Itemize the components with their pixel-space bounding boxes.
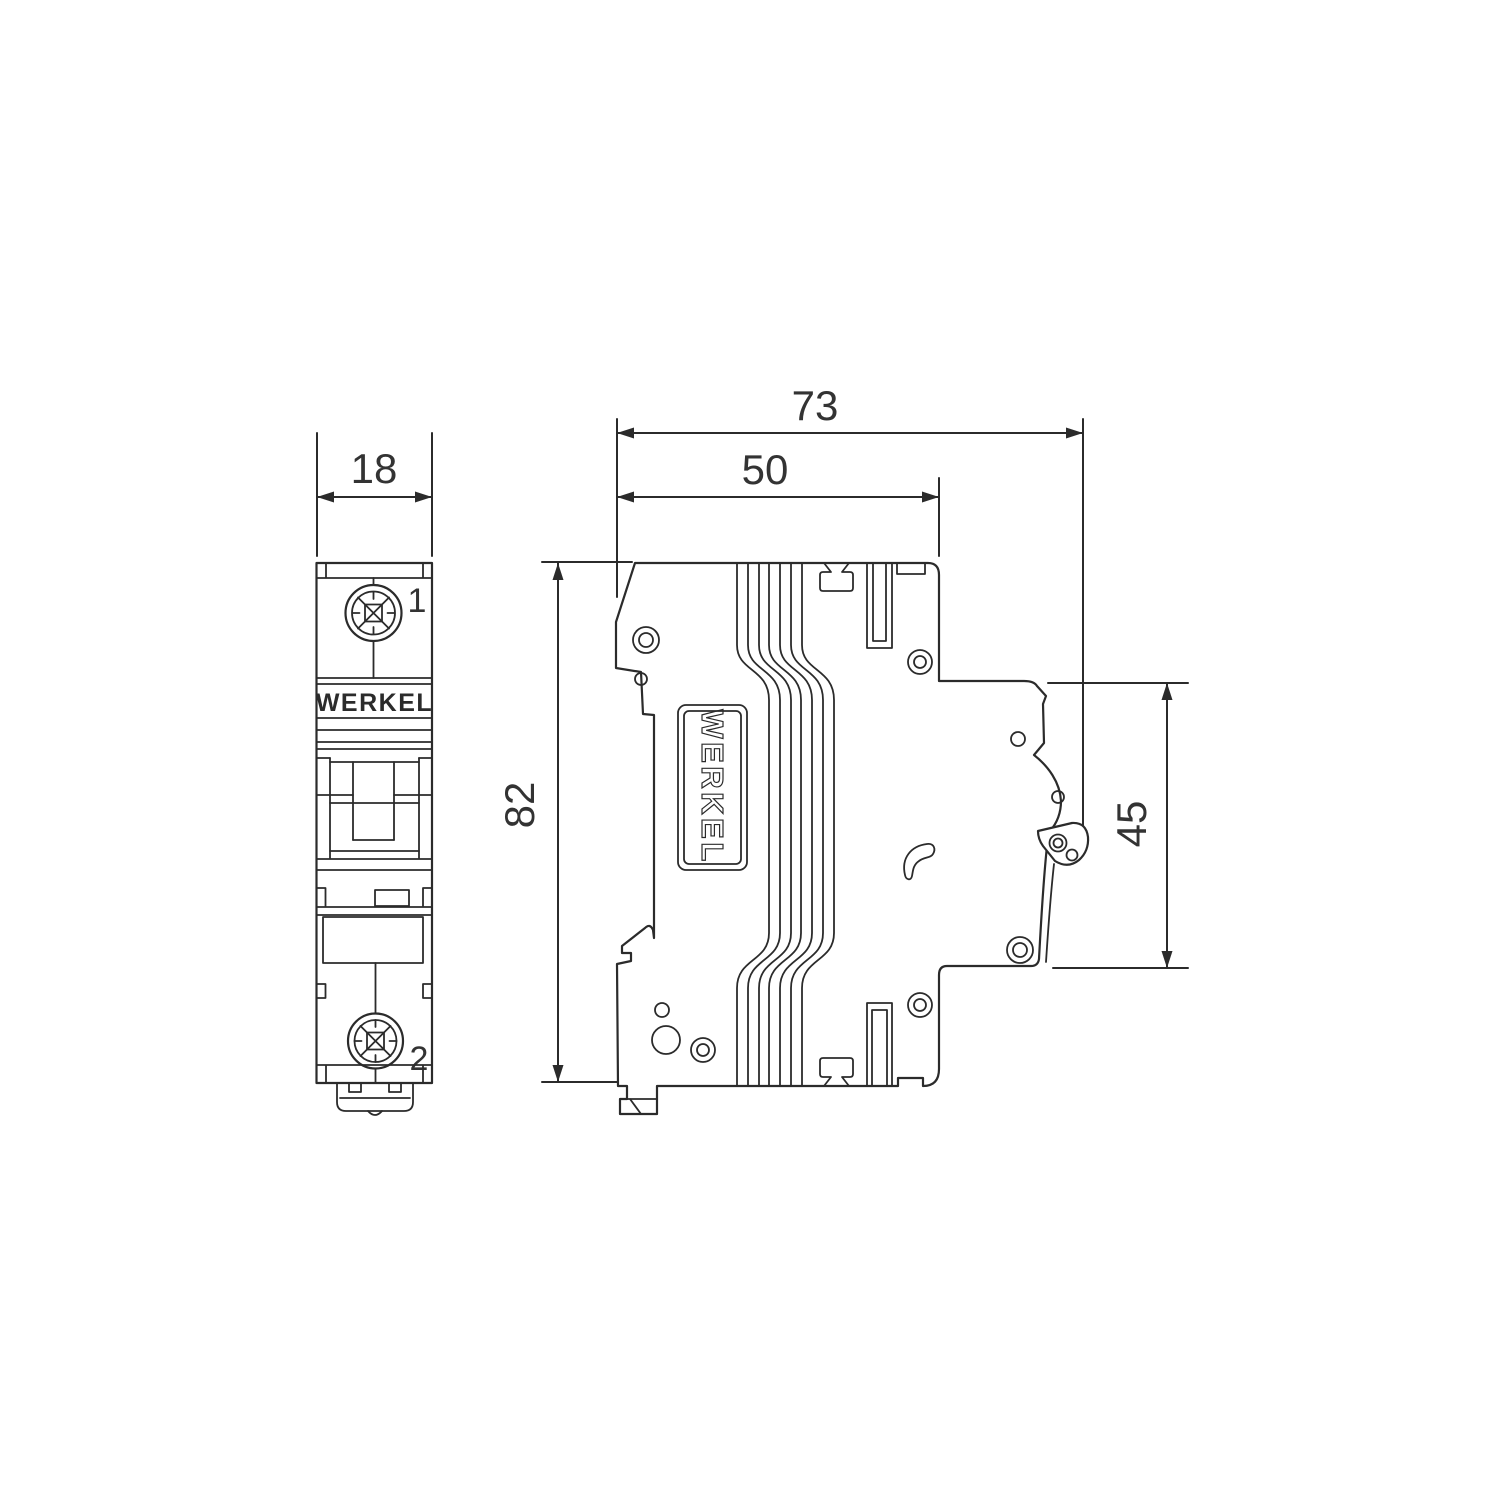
front-view: 1 WERKEL (316, 563, 433, 1115)
dim-text-82: 82 (496, 782, 543, 829)
side-brand-label: WERKEL (695, 709, 730, 864)
dim-text-45: 45 (1108, 801, 1155, 848)
side-view: WERKEL (616, 563, 1088, 1114)
drawing-svg: 18 73 50 82 (0, 0, 1500, 1500)
pozidriv-cross-icon (355, 1020, 397, 1062)
din-latch-leg (1046, 864, 1054, 962)
front-brand-label: WERKEL (316, 689, 433, 717)
pozidriv-cross-icon (353, 592, 395, 634)
technical-drawing-circuit-breaker: 18 73 50 82 (0, 0, 1500, 1500)
dim-text-50: 50 (742, 446, 789, 493)
terminal-1-label: 1 (408, 582, 427, 620)
side-body-outline (616, 563, 1061, 1114)
terminal-2-label: 2 (410, 1040, 429, 1078)
front-din-clip (337, 1083, 413, 1115)
dim-text-73: 73 (792, 382, 839, 429)
dimension-front-width: 18 (317, 433, 432, 556)
dim-text-18: 18 (351, 445, 398, 492)
dimension-body-depth: 50 (617, 446, 939, 556)
dimension-height: 82 (496, 562, 632, 1082)
